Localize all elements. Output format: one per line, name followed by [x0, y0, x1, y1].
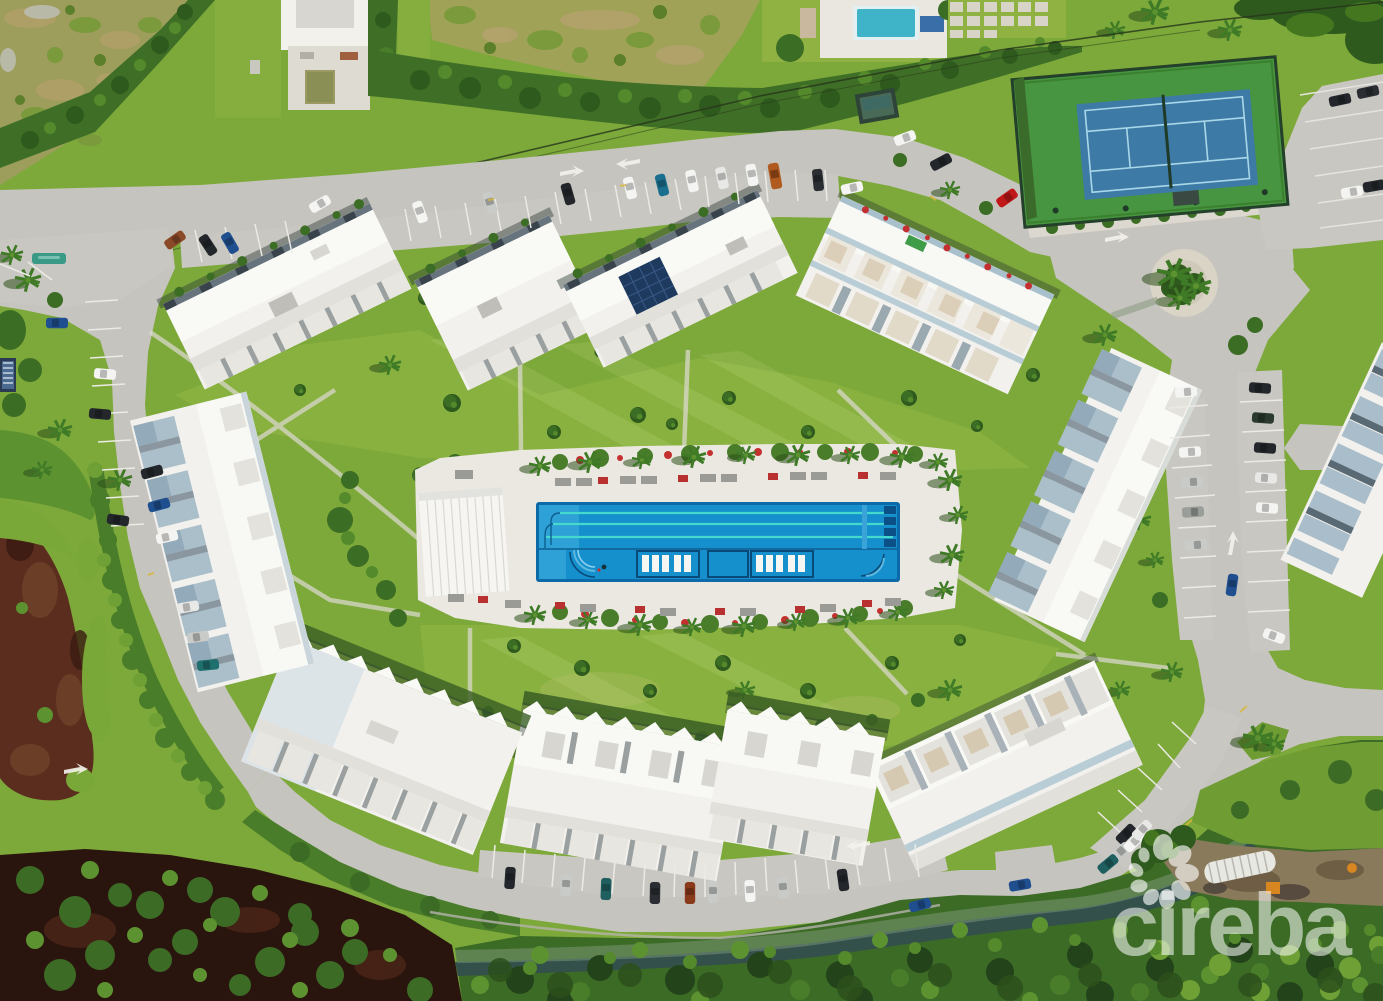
- svg-text:cireba: cireba: [1110, 875, 1353, 974]
